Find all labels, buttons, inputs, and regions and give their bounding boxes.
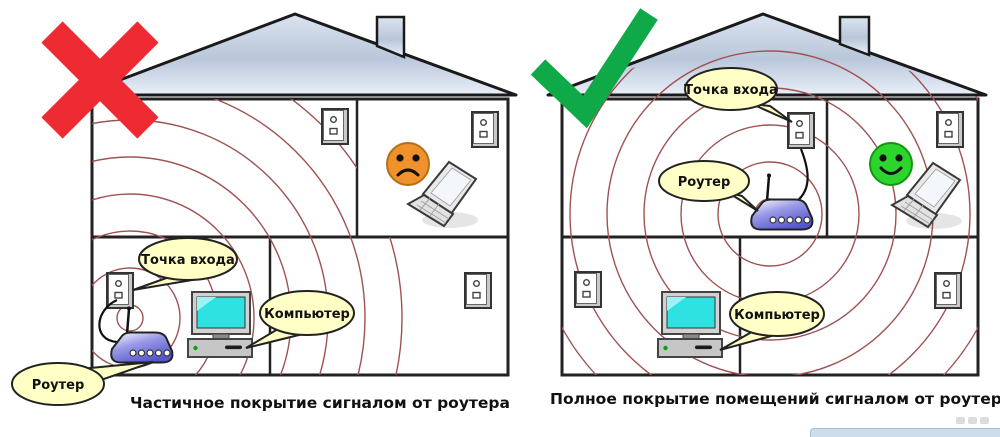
outlet-lower-left: [575, 272, 601, 307]
bubble-label-computer: Компьютер: [264, 307, 350, 322]
diagram-canvas: Точка входа Компьютер Роутер: [0, 0, 1000, 437]
wifi-router-placement-diagram: Точка входа Компьютер Роутер: [0, 0, 1000, 437]
bubble-label-entry: Точка входа: [684, 83, 778, 98]
right-house: Точка входа Роутер Компьютер: [496, 0, 1000, 437]
caption-full-coverage: Полное покрытие помещений сигналом от ро…: [550, 390, 990, 408]
outlet-upper-right: [472, 112, 498, 147]
sad-face-icon: [387, 143, 429, 185]
bubble-label-computer: Компьютер: [734, 308, 820, 323]
horizontal-scrollbar[interactable]: [810, 428, 1000, 437]
desktop-computer: [188, 292, 252, 357]
overflow-dots-icon: [956, 417, 989, 424]
bubble-label-router: Роутер: [32, 378, 85, 393]
left-house: Точка входа Компьютер Роутер: [0, 14, 516, 437]
caption-partial-coverage: Частичное покрытие сигналом от роутера: [100, 394, 540, 412]
outlet-upper-right: [937, 112, 963, 147]
outlet-upper-left: [322, 109, 348, 144]
desktop-computer: [658, 292, 722, 357]
bubble-label-router: Роутер: [678, 175, 731, 190]
happy-face-icon: [870, 143, 912, 185]
outlet-entry-point: [788, 113, 814, 148]
bubble-label-entry: Точка входа: [141, 253, 235, 268]
outlet-lower-right: [465, 273, 491, 308]
outlet-lower-right: [935, 273, 961, 308]
